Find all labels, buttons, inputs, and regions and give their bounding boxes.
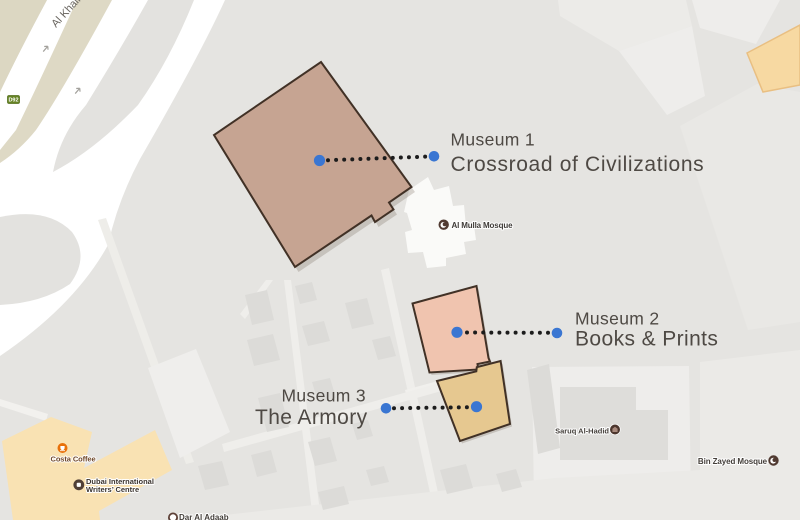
svg-text:Dar Al Adaab: Dar Al Adaab (179, 513, 229, 520)
svg-text:Bin Zayed Mosque: Bin Zayed Mosque (698, 457, 768, 466)
svg-text:Museum 3: Museum 3 (282, 386, 367, 406)
svg-text:Costa Coffee: Costa Coffee (51, 454, 96, 463)
svg-text:Writers’ Centre: Writers’ Centre (86, 485, 139, 494)
svg-text:Museum 1: Museum 1 (451, 130, 536, 150)
svg-text:Al Mulla Mosque: Al Mulla Mosque (452, 221, 514, 230)
svg-text:D92: D92 (8, 98, 18, 104)
svg-text:Museum 2: Museum 2 (575, 308, 660, 328)
svg-text:The Armory: The Armory (255, 406, 368, 429)
svg-text:Saruq Al-Hadid: Saruq Al-Hadid (555, 426, 609, 435)
svg-text:Books & Prints: Books & Prints (575, 328, 718, 351)
svg-text:Crossroad of Civilizations: Crossroad of Civilizations (451, 153, 705, 176)
